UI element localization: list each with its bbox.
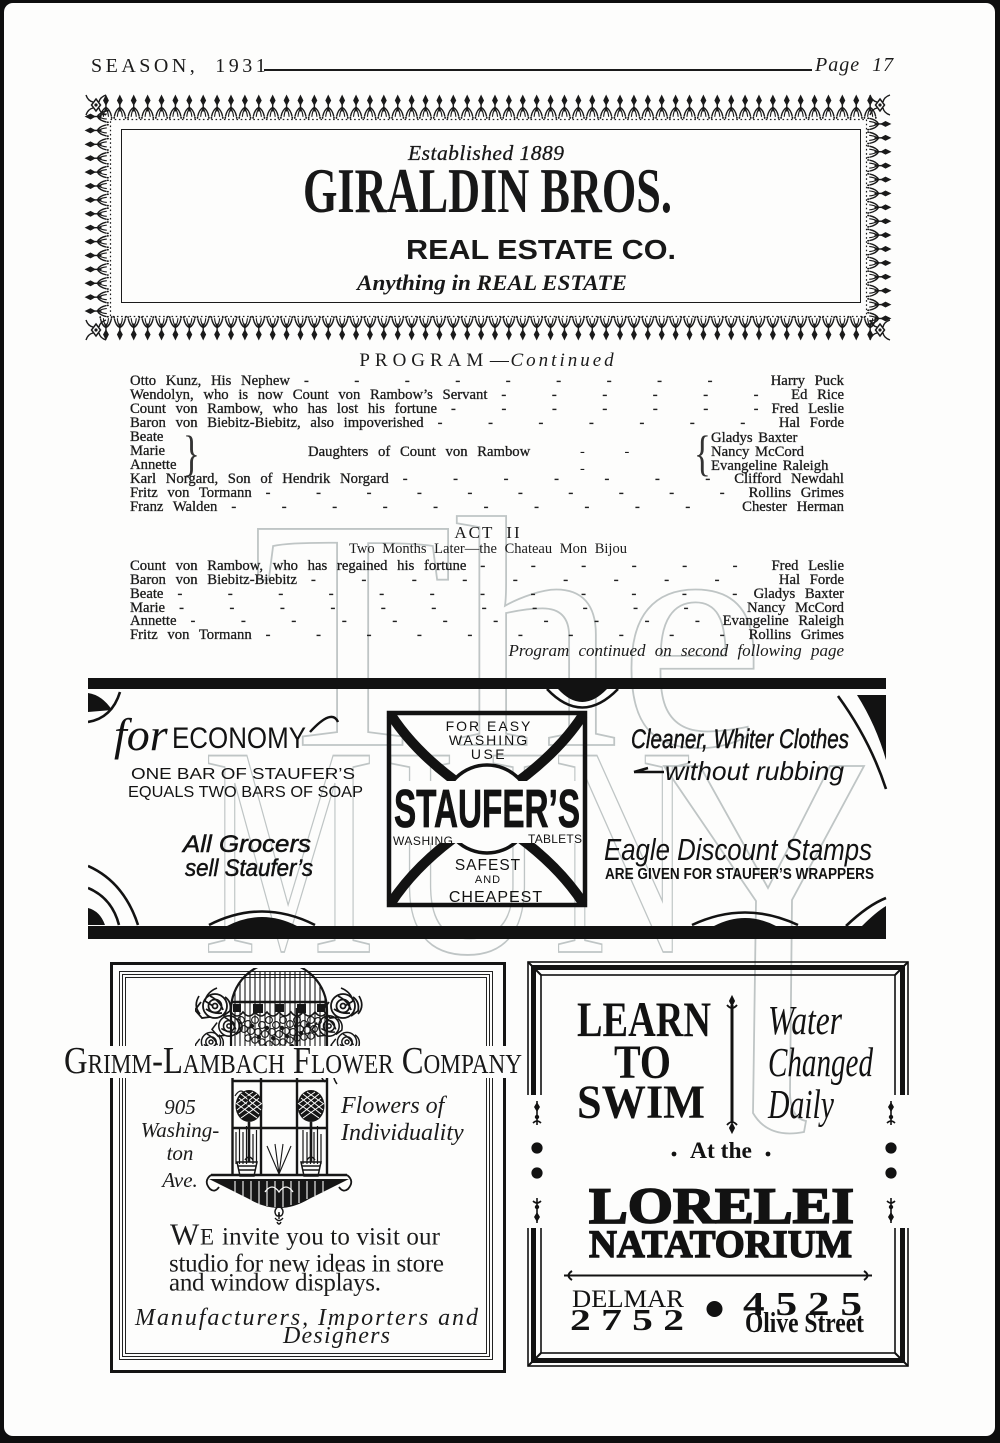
svg-text:NATATORIUM: NATATORIUM <box>589 1223 852 1266</box>
svg-text:SWIM: SWIM <box>577 1076 705 1129</box>
svg-text:CHEAPEST: CHEAPEST <box>449 889 543 906</box>
svg-text:E: E <box>200 1225 214 1250</box>
svg-text:STAUFER’S: STAUFER’S <box>394 779 580 839</box>
svg-text:REAL ESTATE CO.: REAL ESTATE CO. <box>406 234 676 265</box>
svg-text:USE: USE <box>471 746 507 762</box>
svg-text:Grimm-Lambach Flower Company: Grimm-Lambach Flower Company <box>64 1040 522 1082</box>
svg-text:Olive Street: Olive Street <box>745 1308 865 1339</box>
svg-text:invite you to visit our: invite you to visit our <box>222 1224 441 1251</box>
svg-text:GIRALDIN BROS.: GIRALDIN BROS. <box>303 155 672 226</box>
svg-text:At the: At the <box>690 1138 752 1163</box>
svg-text:sell Staufer’s: sell Staufer’s <box>185 855 313 882</box>
svg-text:SAFEST: SAFEST <box>455 857 521 874</box>
svg-text:without rubbing: without rubbing <box>665 756 845 786</box>
svg-text:Water: Water <box>768 997 843 1043</box>
svg-text:Anything in REAL ESTATE: Anything in REAL ESTATE <box>355 270 627 295</box>
svg-text:ARE GIVEN FOR STAUFER’S WRAPPE: ARE GIVEN FOR STAUFER’S WRAPPERS <box>605 866 874 883</box>
svg-text:Daily: Daily <box>767 1081 834 1127</box>
svg-text:ECONOMY: ECONOMY <box>172 722 306 755</box>
svg-text:WASHING: WASHING <box>393 834 453 848</box>
svg-text:ONE BAR OF STAUFER’S: ONE BAR OF STAUFER’S <box>131 766 355 783</box>
svg-text:All Grocers: All Grocers <box>181 831 311 858</box>
svg-text:W: W <box>170 1217 200 1252</box>
svg-text:Cleaner, Whiter Clothes: Cleaner, Whiter Clothes <box>631 724 849 754</box>
svg-text:TABLETS: TABLETS <box>528 832 582 846</box>
svg-text:2 7 5 2: 2 7 5 2 <box>570 1302 684 1337</box>
svg-text:Changed: Changed <box>768 1039 873 1085</box>
svg-text:AND: AND <box>475 874 501 886</box>
svg-text:Designers: Designers <box>282 1323 390 1349</box>
svg-text:and window displays.: and window displays. <box>169 1270 381 1297</box>
svg-text:Eagle Discount Stamps: Eagle Discount Stamps <box>604 832 872 867</box>
svg-text:EQUALS TWO BARS OF SOAP: EQUALS TWO BARS OF SOAP <box>128 784 363 801</box>
svg-text:for: for <box>114 709 169 760</box>
